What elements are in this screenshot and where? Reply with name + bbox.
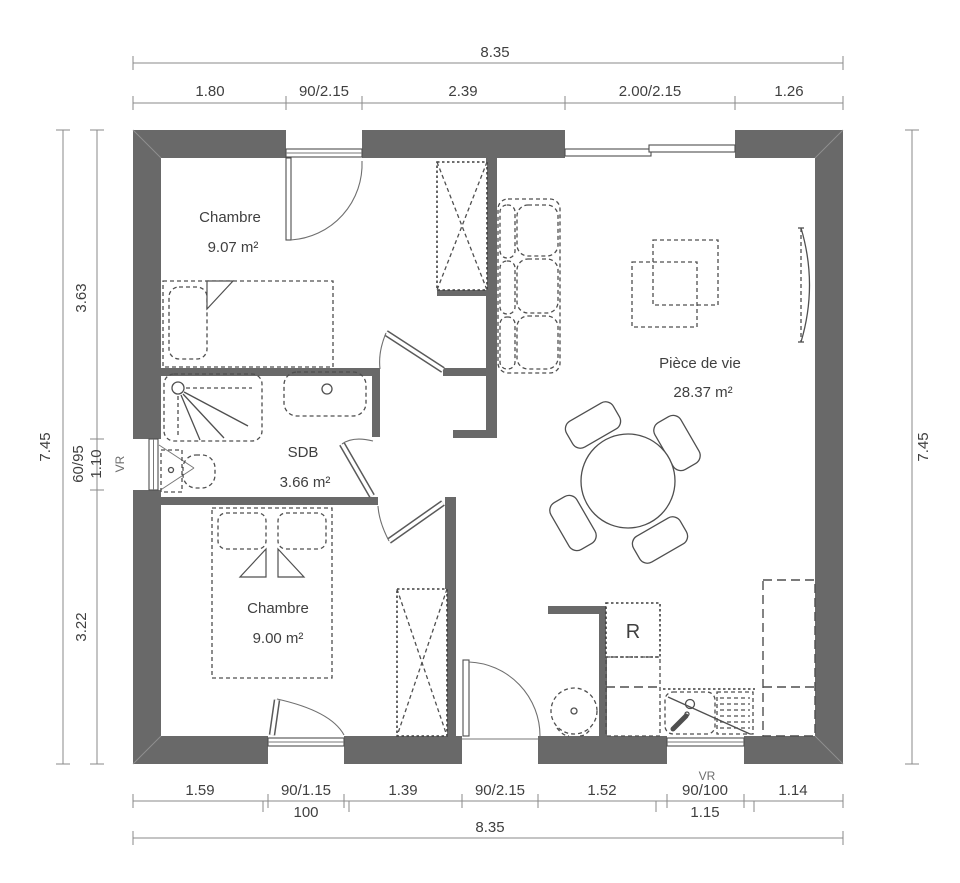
room-area-chambre1: 9.07 m² bbox=[208, 239, 259, 256]
fridge-unit: R bbox=[606, 603, 660, 736]
room-name-chambre1: Chambre bbox=[199, 209, 261, 226]
vr-left-label: VR bbox=[113, 455, 127, 472]
dim-top-seg5: 1.26 bbox=[774, 83, 803, 100]
dimension-top: 8.35 1.80 90/2.15 2.39 2.00/2.15 1.26 bbox=[133, 44, 843, 110]
drainer-icon bbox=[717, 692, 753, 734]
dim-top-seg1: 1.80 bbox=[195, 83, 224, 100]
dim-bottom-seg5: 1.52 bbox=[587, 782, 616, 799]
toilet-icon bbox=[161, 450, 215, 492]
bed-double-icon bbox=[212, 508, 332, 678]
bedroom1-furniture bbox=[163, 162, 487, 367]
dim-bottom-seg2: 90/1.15 bbox=[281, 782, 331, 799]
dim-bottom-seg7: 1.14 bbox=[778, 782, 807, 799]
shower-icon bbox=[164, 374, 262, 441]
coffee-table-icon bbox=[632, 240, 718, 327]
bathroom-fixtures bbox=[161, 372, 366, 492]
dim-bottom-seg6: 90/100 bbox=[682, 782, 728, 799]
dim-left-seg2: 60/95 bbox=[70, 445, 87, 483]
kitchen-window bbox=[667, 738, 744, 746]
room-area-chambre2: 9.00 m² bbox=[253, 630, 304, 647]
water-heater-icon bbox=[551, 688, 597, 736]
floor-plan-svg: R Chambre bbox=[0, 0, 960, 883]
dimension-right: 7.45 bbox=[905, 130, 932, 764]
french-door-swing bbox=[286, 158, 362, 240]
dim-bottom-sub-115: 1.15 bbox=[690, 804, 719, 821]
radiator-icon bbox=[798, 228, 810, 342]
dim-bottom-seg1: 1.59 bbox=[185, 782, 214, 799]
dim-left-total: 7.45 bbox=[37, 432, 54, 461]
bathroom-door bbox=[342, 439, 373, 496]
pillow-icon bbox=[218, 513, 266, 549]
dimension-left: 7.45 3.63 60/95 1.10 3.22 VR bbox=[37, 130, 127, 764]
dim-top-seg4: 2.00/2.15 bbox=[619, 83, 682, 100]
french-door-window bbox=[286, 149, 362, 157]
bedroom2-door bbox=[378, 503, 443, 541]
round-table-icon bbox=[581, 434, 675, 528]
wardrobe-icon bbox=[397, 589, 447, 736]
dim-top-seg3: 2.39 bbox=[448, 83, 477, 100]
dimension-bottom: VR 1.59 90/1.15 1.39 90/2.15 1.52 90/100… bbox=[133, 769, 843, 845]
pillow-icon bbox=[169, 287, 207, 359]
pillow-icon bbox=[278, 513, 326, 549]
blanket-fold-icon bbox=[278, 549, 304, 577]
dim-left-seg3: 1.10 bbox=[88, 449, 105, 478]
wardrobe-icon bbox=[437, 162, 487, 290]
dim-top-seg2: 90/2.15 bbox=[299, 83, 349, 100]
dim-top-total: 8.35 bbox=[480, 44, 509, 61]
dim-bottom-seg3: 1.39 bbox=[388, 782, 417, 799]
sofa-icon bbox=[498, 199, 560, 373]
dim-right-total: 7.45 bbox=[915, 432, 932, 461]
bed-single-icon bbox=[163, 281, 333, 367]
faucet-icon bbox=[673, 716, 686, 729]
blanket-fold-icon bbox=[207, 281, 233, 309]
bedroom2-window bbox=[268, 699, 344, 746]
dim-left-seg1: 3.63 bbox=[73, 283, 90, 312]
dim-bottom-seg4: 90/2.15 bbox=[475, 782, 525, 799]
bay-window bbox=[565, 145, 735, 156]
blanket-fold-icon bbox=[240, 549, 266, 577]
kitchen-counter-icon bbox=[763, 580, 815, 736]
vr-bottom-label: VR bbox=[699, 769, 716, 783]
bathroom-window bbox=[149, 439, 194, 491]
dim-bottom-total: 8.35 bbox=[475, 819, 504, 836]
dim-bottom-sub-100: 100 bbox=[293, 804, 318, 821]
kitchen-sink-icon bbox=[663, 689, 755, 734]
entrance-door bbox=[462, 660, 540, 739]
room-area-sdb: 3.66 m² bbox=[280, 474, 331, 491]
living-room-furniture bbox=[498, 199, 810, 566]
dim-left-seg4: 3.22 bbox=[73, 612, 90, 641]
room-name-chambre2: Chambre bbox=[247, 600, 309, 617]
washbasin-icon bbox=[284, 372, 366, 416]
kitchen-units: R bbox=[551, 580, 815, 736]
bedroom2-furniture bbox=[212, 508, 447, 736]
room-name-piece-de-vie: Pièce de vie bbox=[659, 355, 741, 372]
bedroom1-door bbox=[380, 333, 443, 370]
floor-plan-page: R Chambre bbox=[0, 0, 960, 883]
room-name-sdb: SDB bbox=[288, 444, 319, 461]
dining-set-icon bbox=[547, 399, 704, 567]
fridge-label: R bbox=[626, 621, 640, 643]
room-area-piece-de-vie: 28.37 m² bbox=[673, 384, 732, 401]
